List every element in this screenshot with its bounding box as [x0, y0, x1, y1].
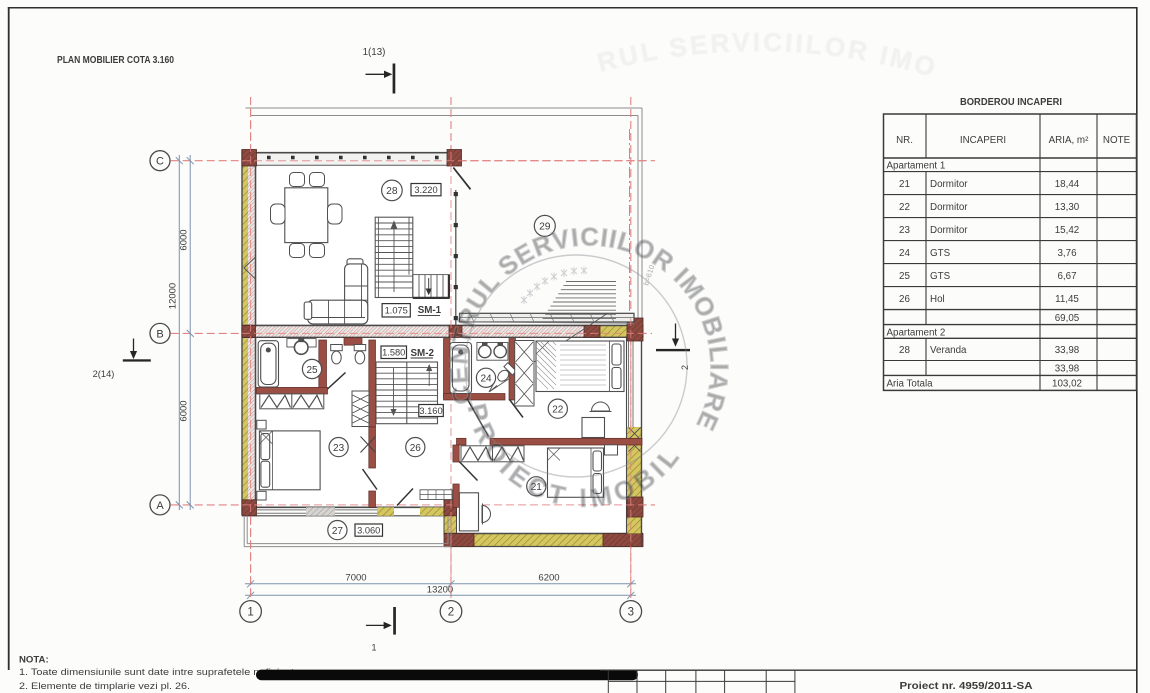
svg-text:25: 25	[899, 271, 910, 282]
svg-text:NOTA:: NOTA:	[19, 655, 49, 666]
svg-text:SM-2: SM-2	[411, 348, 435, 359]
svg-text:33,98: 33,98	[1055, 345, 1080, 356]
svg-text:103,02: 103,02	[1052, 379, 1082, 390]
svg-text:1: 1	[247, 607, 253, 619]
svg-text:Aria Totala: Aria Totala	[887, 379, 934, 390]
svg-text:2(14): 2(14)	[93, 369, 115, 379]
svg-text:28: 28	[386, 186, 398, 197]
svg-text:2. Elemente de timplarie vezi: 2. Elemente de timplarie vezi pl. 26.	[19, 681, 190, 691]
svg-text:NR.: NR.	[896, 135, 913, 146]
svg-text:6,67: 6,67	[1057, 271, 1076, 282]
svg-text:SM-1: SM-1	[418, 305, 442, 316]
svg-text:27: 27	[332, 526, 344, 537]
svg-text:69,05: 69,05	[1055, 313, 1080, 324]
svg-text:28: 28	[899, 345, 910, 356]
svg-text:12000: 12000	[168, 283, 179, 309]
svg-text:Dormitor: Dormitor	[930, 202, 968, 213]
svg-text:25: 25	[306, 365, 318, 376]
svg-text:3.220: 3.220	[414, 185, 437, 195]
svg-text:Dormitor: Dormitor	[930, 225, 968, 236]
svg-text:2: 2	[680, 365, 690, 370]
svg-text:1.075: 1.075	[385, 306, 408, 316]
svg-text:6000: 6000	[179, 229, 190, 250]
svg-text:3.060: 3.060	[357, 526, 380, 536]
svg-text:24: 24	[899, 248, 910, 259]
svg-text:Hol: Hol	[930, 294, 945, 305]
svg-text:6200: 6200	[538, 573, 559, 584]
svg-text:13,30: 13,30	[1055, 202, 1080, 213]
svg-text:1(13): 1(13)	[363, 47, 386, 58]
svg-text:7000: 7000	[345, 573, 366, 584]
svg-text:Apartament 2: Apartament 2	[887, 327, 946, 338]
svg-text:3,76: 3,76	[1057, 248, 1077, 259]
svg-text:A: A	[156, 500, 164, 512]
svg-text:2: 2	[448, 607, 454, 619]
svg-text:26: 26	[410, 443, 422, 454]
svg-text:23: 23	[899, 225, 910, 236]
svg-text:Apartament 1: Apartament 1	[887, 161, 946, 172]
svg-text:GTS: GTS	[930, 248, 951, 259]
svg-text:PLAN MOBILIER COTA 3.160: PLAN MOBILIER COTA 3.160	[57, 54, 174, 66]
svg-text:C: C	[156, 156, 164, 168]
svg-text:NOTE: NOTE	[1103, 135, 1131, 146]
svg-text:13200: 13200	[427, 584, 453, 595]
svg-text:22: 22	[552, 405, 564, 416]
svg-text:22: 22	[899, 202, 910, 213]
svg-text:B: B	[156, 328, 163, 340]
svg-text:3.160: 3.160	[419, 406, 442, 416]
svg-text:3: 3	[628, 607, 634, 619]
svg-text:Veranda: Veranda	[930, 345, 967, 356]
svg-text:11,45: 11,45	[1055, 294, 1079, 305]
svg-text:18,44: 18,44	[1055, 179, 1080, 190]
svg-text:23: 23	[333, 443, 345, 454]
svg-text:1: 1	[371, 643, 376, 653]
svg-text:6000: 6000	[179, 400, 190, 421]
svg-text:1.580: 1.580	[382, 348, 405, 358]
svg-text:26: 26	[899, 294, 910, 305]
svg-text:Dormitor: Dormitor	[930, 179, 968, 190]
svg-text:GTS: GTS	[930, 271, 951, 282]
svg-text:BORDEROU INCAPERI: BORDEROU INCAPERI	[960, 96, 1062, 108]
svg-text:INCAPERI: INCAPERI	[960, 135, 1006, 146]
svg-text:Proiect nr. 4959/2011-SA: Proiect nr. 4959/2011-SA	[900, 680, 1033, 692]
svg-text:15,42: 15,42	[1055, 225, 1080, 236]
svg-text:21: 21	[899, 179, 910, 190]
svg-text:33,98: 33,98	[1055, 364, 1080, 375]
svg-text:24: 24	[480, 374, 492, 385]
svg-text:ARIA, m²: ARIA, m²	[1049, 135, 1089, 146]
